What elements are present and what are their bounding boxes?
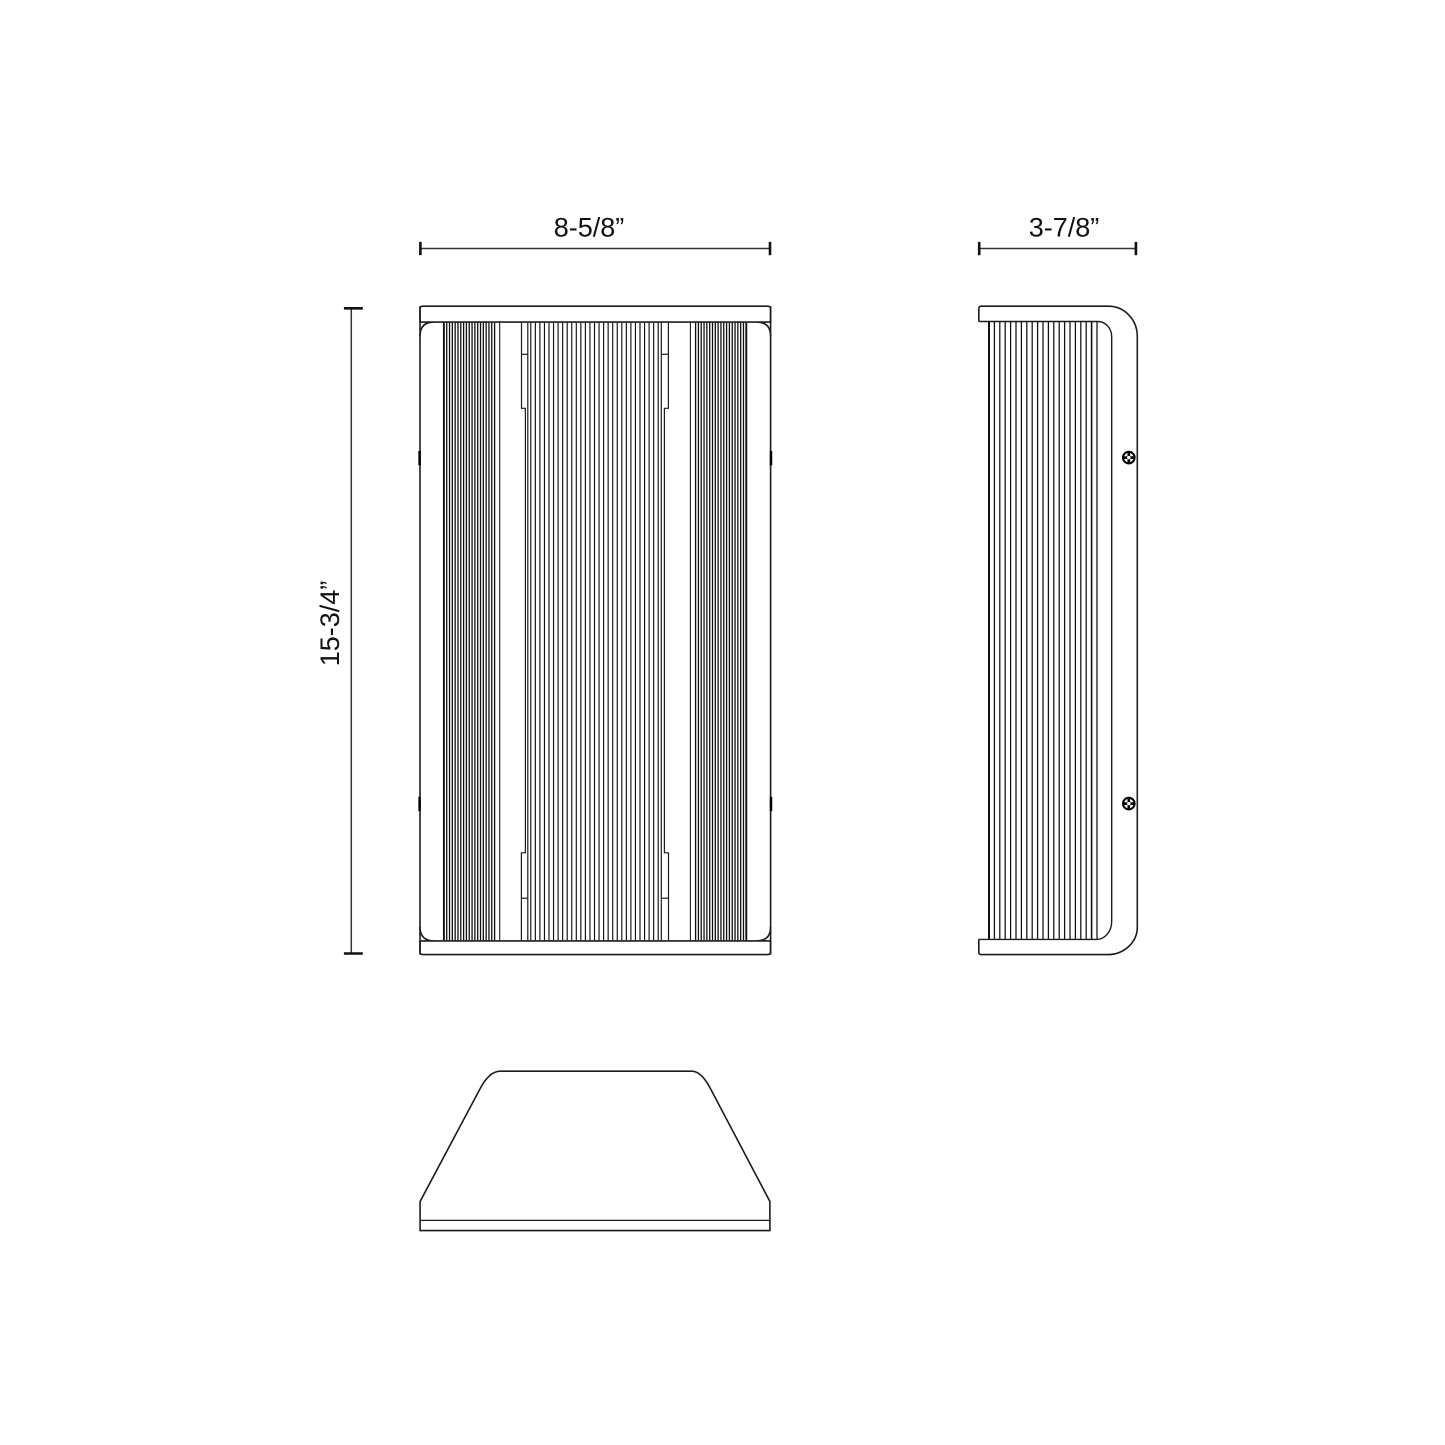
svg-text:15-3/4”: 15-3/4”	[315, 581, 345, 667]
svg-text:3-7/8”: 3-7/8”	[1029, 213, 1100, 243]
svg-text:8-5/8”: 8-5/8”	[554, 213, 625, 243]
